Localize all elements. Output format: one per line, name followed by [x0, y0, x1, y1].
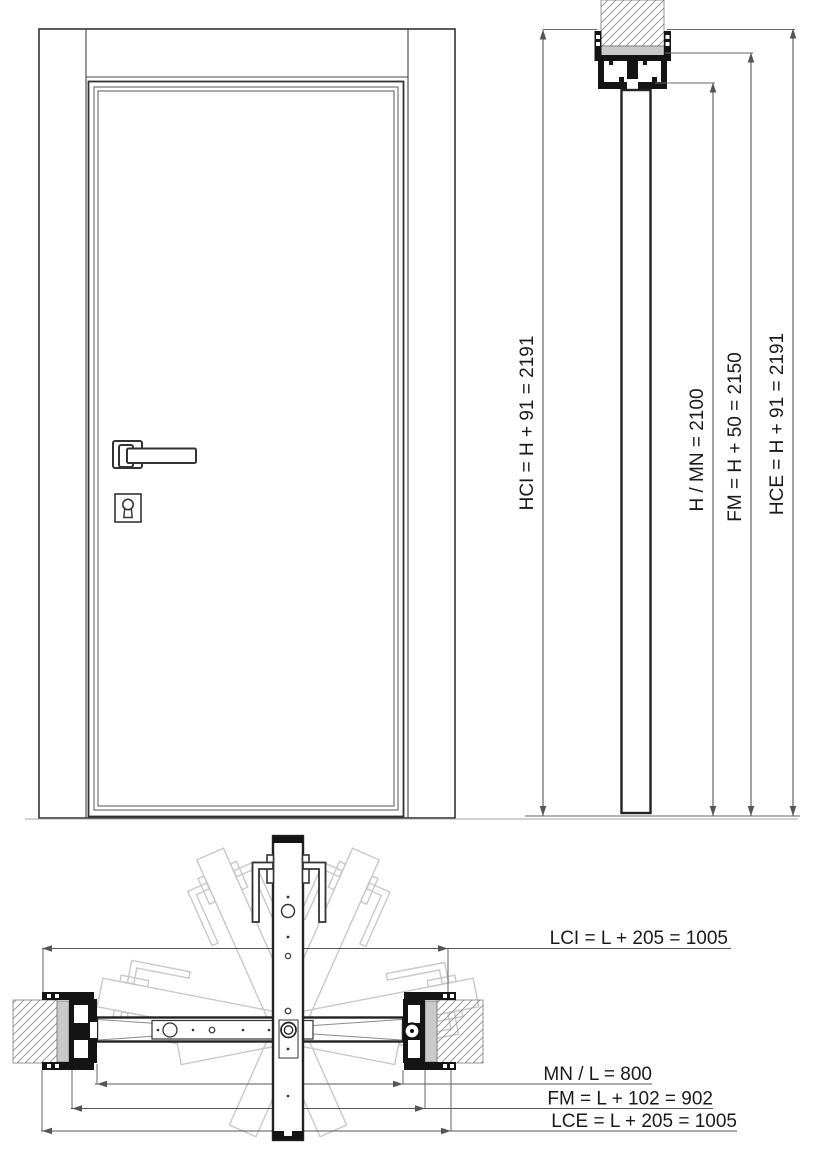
- dimension-label-h-mn: H / MN = 2100: [687, 388, 708, 511]
- dimension-label-fm-horizontal: FM = L + 102 = 902: [547, 1089, 713, 1110]
- wall-section-head: [601, 0, 664, 46]
- right-jamb-assembly: [403, 992, 483, 1070]
- door-leaf-section: [622, 90, 651, 813]
- keyhole-escutcheon: [115, 494, 141, 522]
- dimension-label-lce: LCE = L + 205 = 1005: [551, 1111, 737, 1132]
- handle-grip: [127, 449, 196, 464]
- left-jamb-assembly: [13, 992, 97, 1070]
- door-technical-drawing: HCI = H + 91 = 2191 H / MN = 2100 FM = H…: [0, 0, 823, 1161]
- leaf-top-cap: [273, 836, 303, 843]
- front-elevation-view: [39, 29, 455, 818]
- wall-section-left: [13, 1000, 57, 1063]
- dimension-label-hci: HCI = H + 91 = 2191: [517, 336, 538, 511]
- dimension-label-fm-vertical: FM = H + 50 = 2150: [725, 352, 746, 522]
- dimension-label-mn-l: MN / L = 800: [543, 1064, 652, 1085]
- wall-section-right: [437, 1000, 483, 1063]
- door-leaf-closed-plan: [97, 1018, 403, 1042]
- plaster-band-left: [57, 1001, 69, 1062]
- dimension-label-lci: LCI = L + 205 = 1005: [550, 928, 728, 949]
- plaster-band-right: [425, 1001, 437, 1062]
- dimension-label-hce: HCE = H + 91 = 2191: [767, 333, 788, 515]
